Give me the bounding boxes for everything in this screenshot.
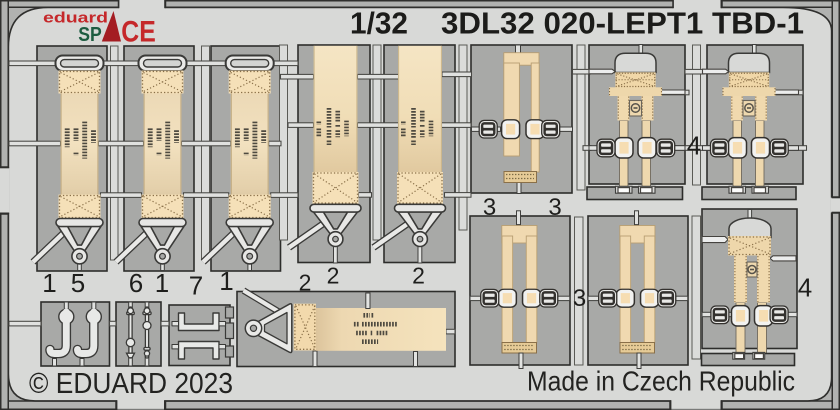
svg-text:3: 3 — [548, 194, 561, 221]
svg-text:6: 6 — [129, 268, 143, 298]
svg-text:SP: SP — [78, 24, 102, 46]
svg-text:© EDUARD 2023: © EDUARD 2023 — [29, 368, 233, 400]
svg-text:1: 1 — [42, 268, 56, 298]
svg-text:1: 1 — [219, 266, 233, 296]
svg-text:2: 2 — [299, 270, 312, 296]
svg-text:1: 1 — [155, 268, 169, 298]
svg-text:5: 5 — [71, 268, 85, 298]
svg-text:3DL32 020-LEPT1 TBD-1: 3DL32 020-LEPT1 TBD-1 — [441, 6, 804, 41]
svg-text:2: 2 — [412, 263, 425, 289]
svg-text:3: 3 — [483, 194, 496, 221]
svg-text:CE: CE — [121, 16, 156, 49]
svg-text:4: 4 — [687, 131, 701, 161]
svg-text:7: 7 — [189, 271, 203, 301]
svg-text:1/32: 1/32 — [350, 6, 408, 41]
svg-text:2: 2 — [327, 263, 340, 289]
svg-text:3: 3 — [573, 285, 586, 312]
svg-text:4: 4 — [798, 273, 812, 303]
svg-text:Made in Czech Republic: Made in Czech Republic — [527, 366, 795, 397]
